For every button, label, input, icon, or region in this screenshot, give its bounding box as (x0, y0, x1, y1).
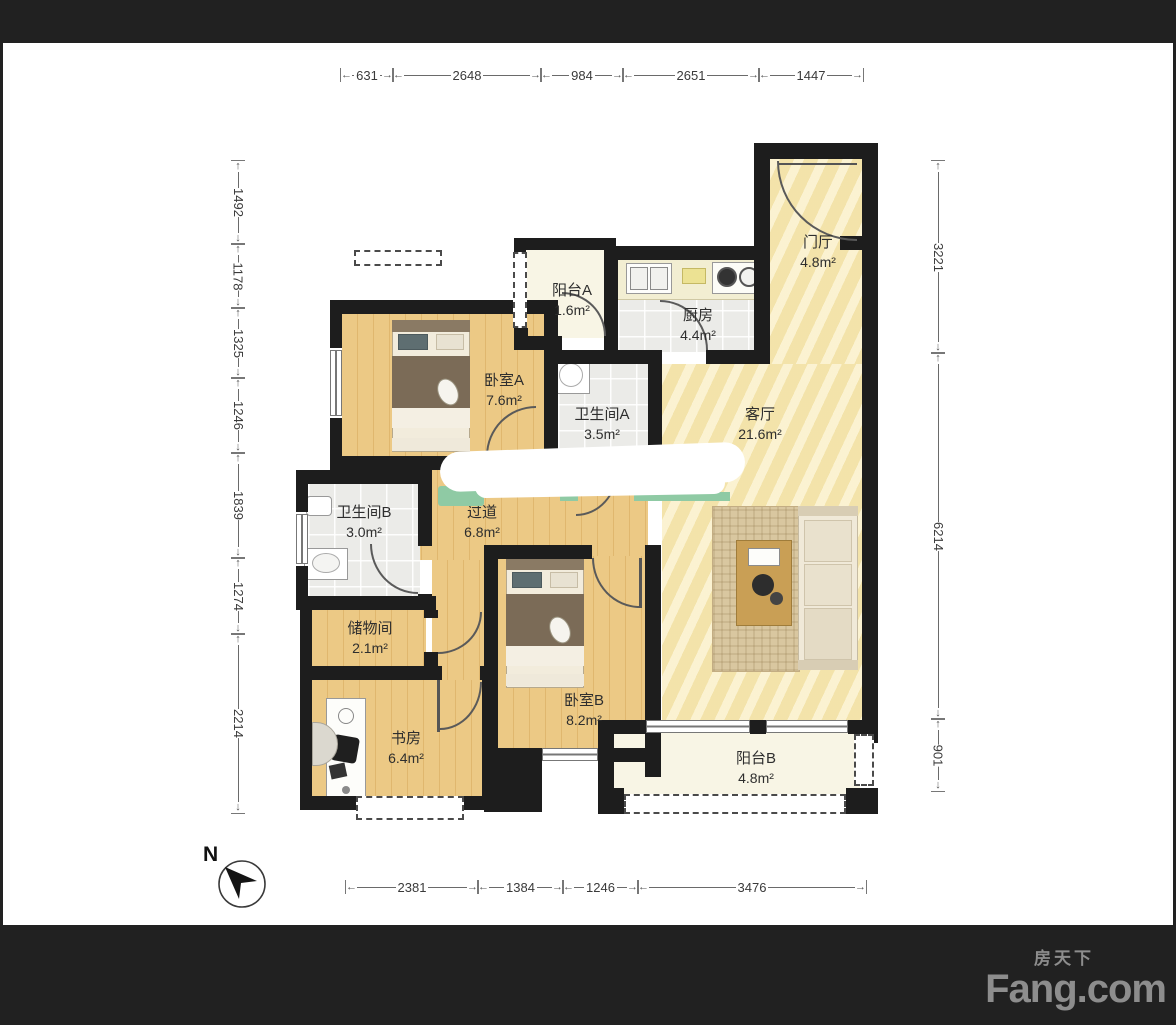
bed-a-sheet (392, 408, 470, 428)
coffee-table-kettle (752, 574, 774, 596)
floor-plan-image: 门厅4.8m² 厨房4.4m² 阳台A1.6m² 卧室A7.6m² 卫生间A3.… (0, 0, 1176, 1025)
sofa-cushion (804, 564, 852, 606)
bed-b-headboard (506, 558, 584, 570)
room-label-hallway: 过道6.8m² (464, 503, 500, 541)
arrow-left-icon: ← (623, 70, 634, 81)
wall (296, 470, 308, 512)
wall (604, 250, 618, 350)
dim-top-984: ←984→ (540, 68, 624, 82)
dim-right-3221: ↑3221↓ (931, 160, 945, 354)
arrow-up-icon: ↑ (235, 378, 241, 389)
sofa-arm (798, 660, 858, 670)
arrow-up-icon: ↑ (235, 558, 241, 569)
fang-logo-english: Fang.com (985, 967, 1166, 1012)
arrow-down-icon: ↓ (235, 802, 241, 813)
stove-burner (717, 267, 737, 287)
room-label-entry: 门厅4.8m² (800, 233, 836, 271)
dim-left-1492: ↑1492↓ (231, 160, 245, 245)
arrow-right-icon: → (855, 882, 866, 893)
wall (296, 470, 432, 484)
dim-left-1839: ↑1839↓ (231, 452, 245, 559)
wall (418, 470, 432, 546)
wall (754, 143, 770, 260)
dim-top-2648: ←2648→ (392, 68, 542, 82)
wall (484, 748, 542, 762)
bay-window-balcony-a (513, 252, 527, 328)
window-living-balcony (766, 720, 848, 733)
north-arrow-icon (214, 856, 268, 910)
coffee-table-cup (770, 592, 783, 605)
dim-left-2214: ↑2214↓ (231, 633, 245, 814)
arrow-down-icon: ↓ (935, 780, 941, 791)
sofa-cushion (804, 520, 852, 562)
bed-a-pillow (436, 334, 464, 350)
wall (484, 545, 592, 559)
bed-a-sheet (392, 438, 470, 451)
door-leaf-study (437, 680, 440, 732)
wall (754, 260, 770, 364)
arrow-left-icon: ← (478, 882, 489, 893)
arrow-up-icon: ↑ (935, 719, 941, 730)
bay-window-balcony-b-right (854, 734, 874, 786)
window-bedroom-a (330, 350, 342, 416)
wall (424, 610, 438, 618)
desk-lamp (338, 708, 354, 724)
door-leaf-entry (779, 163, 857, 165)
sink-bath-b-bowl (312, 553, 340, 573)
bed-b-pillow (550, 572, 578, 588)
room-label-kitchen: 厨房4.4m² (680, 306, 716, 344)
room-label-bedroom-b: 卧室B8.2m² (564, 691, 604, 729)
fang-logo-chinese: 房天下 (1034, 944, 1094, 969)
wall (300, 796, 356, 810)
dim-top-631: ←631→ (340, 68, 394, 82)
room-label-bath-a: 卫生间A3.5m² (574, 405, 629, 443)
compass (214, 856, 268, 915)
bed-b-sheet (506, 646, 584, 666)
desk-item (342, 786, 350, 794)
wall (706, 350, 770, 364)
window-living-balcony (646, 720, 750, 733)
wall (514, 238, 616, 250)
wall (300, 666, 442, 680)
wall (514, 238, 526, 252)
wall (598, 720, 614, 798)
door-leaf-bedroom-b (639, 558, 642, 608)
wall (548, 350, 660, 364)
wall (606, 246, 770, 260)
bed-b-sheet (506, 674, 584, 686)
coffee-table-tray (748, 548, 780, 566)
window-bath-b (296, 514, 308, 564)
dim-right-901: ↑901↓ (931, 718, 945, 792)
wall (330, 300, 342, 348)
bay-window-study (356, 796, 464, 820)
toilet-bath-b (306, 496, 332, 516)
dim-left-1274: ↑1274↓ (231, 557, 245, 635)
kitchen-sink-basin (630, 267, 648, 290)
wall (598, 788, 624, 814)
arrow-left-icon: ← (393, 70, 404, 81)
room-label-balcony-a: 阳台A1.6m² (552, 281, 592, 319)
dim-top-2651: ←2651→ (622, 68, 760, 82)
arrow-up-icon: ↑ (235, 244, 241, 255)
arrow-left-icon: ← (759, 70, 770, 81)
bed-b-blanket (506, 594, 584, 646)
room-label-bedroom-a: 卧室A7.6m² (484, 371, 524, 409)
wall (862, 143, 878, 743)
wall (544, 300, 558, 470)
wall (848, 720, 878, 734)
dim-top-1447: ←1447→ (758, 68, 864, 82)
arrow-up-icon: ↑ (935, 161, 941, 172)
arrow-up-icon: ↑ (235, 634, 241, 645)
arrow-left-icon: ← (638, 882, 649, 893)
bed-a-blanket (392, 356, 470, 408)
arrow-left-icon: ← (346, 882, 357, 893)
bed-a-headboard (392, 320, 470, 332)
dim-left-1178: ↑1178↓ (231, 243, 245, 309)
kitchen-board (682, 268, 706, 284)
bed-a-pillow (398, 334, 428, 350)
dim-bottom-3476: ←3476→ (637, 880, 867, 894)
arrow-right-icon: → (852, 70, 863, 81)
wall (612, 720, 646, 734)
wall (846, 788, 878, 814)
dim-bottom-1384: ←1384→ (477, 880, 564, 894)
dim-left-1325: ↑1325↓ (231, 307, 245, 379)
wall (754, 143, 878, 159)
arrow-left-icon: ← (341, 70, 352, 81)
arrow-up-icon: ↑ (235, 308, 241, 319)
arrow-left-icon: ← (563, 882, 574, 893)
fang-logo: 房天下 Fang.com (982, 944, 1168, 1014)
washer-bath-a-drum (559, 363, 583, 387)
room-label-balcony-b: 阳台B4.8m² (736, 749, 776, 787)
wall (750, 720, 766, 734)
room-label-living: 客厅21.6m² (738, 405, 782, 443)
room-label-bath-b: 卫生间B3.0m² (336, 503, 391, 541)
room-label-study: 书房6.4m² (388, 729, 424, 767)
wall (484, 762, 542, 812)
bay-window-balcony-b-bottom (624, 794, 846, 814)
window-bedroom-b (542, 748, 598, 761)
watermark-blob (475, 472, 725, 498)
sofa-chaise (804, 608, 852, 660)
bay-window-bedroom-a (354, 250, 442, 266)
dim-bottom-2381: ←2381→ (345, 880, 479, 894)
wall (484, 545, 498, 765)
bed-b-pillow (512, 572, 542, 588)
arrow-up-icon: ↑ (235, 161, 241, 172)
dim-right-6214: ↑6214↓ (931, 352, 945, 720)
wall (300, 680, 312, 810)
room-label-storage: 储物间2.1m² (347, 619, 392, 657)
dim-bottom-1246: ←1246→ (562, 880, 639, 894)
wall (296, 596, 436, 610)
dim-left-1246: ↑1246↓ (231, 377, 245, 454)
arrow-up-icon: ↑ (935, 353, 941, 364)
arrow-up-icon: ↑ (235, 453, 241, 464)
wall (645, 545, 661, 777)
arrow-left-icon: ← (541, 70, 552, 81)
kitchen-sink-basin (650, 267, 668, 290)
sofa-arm (798, 506, 858, 516)
